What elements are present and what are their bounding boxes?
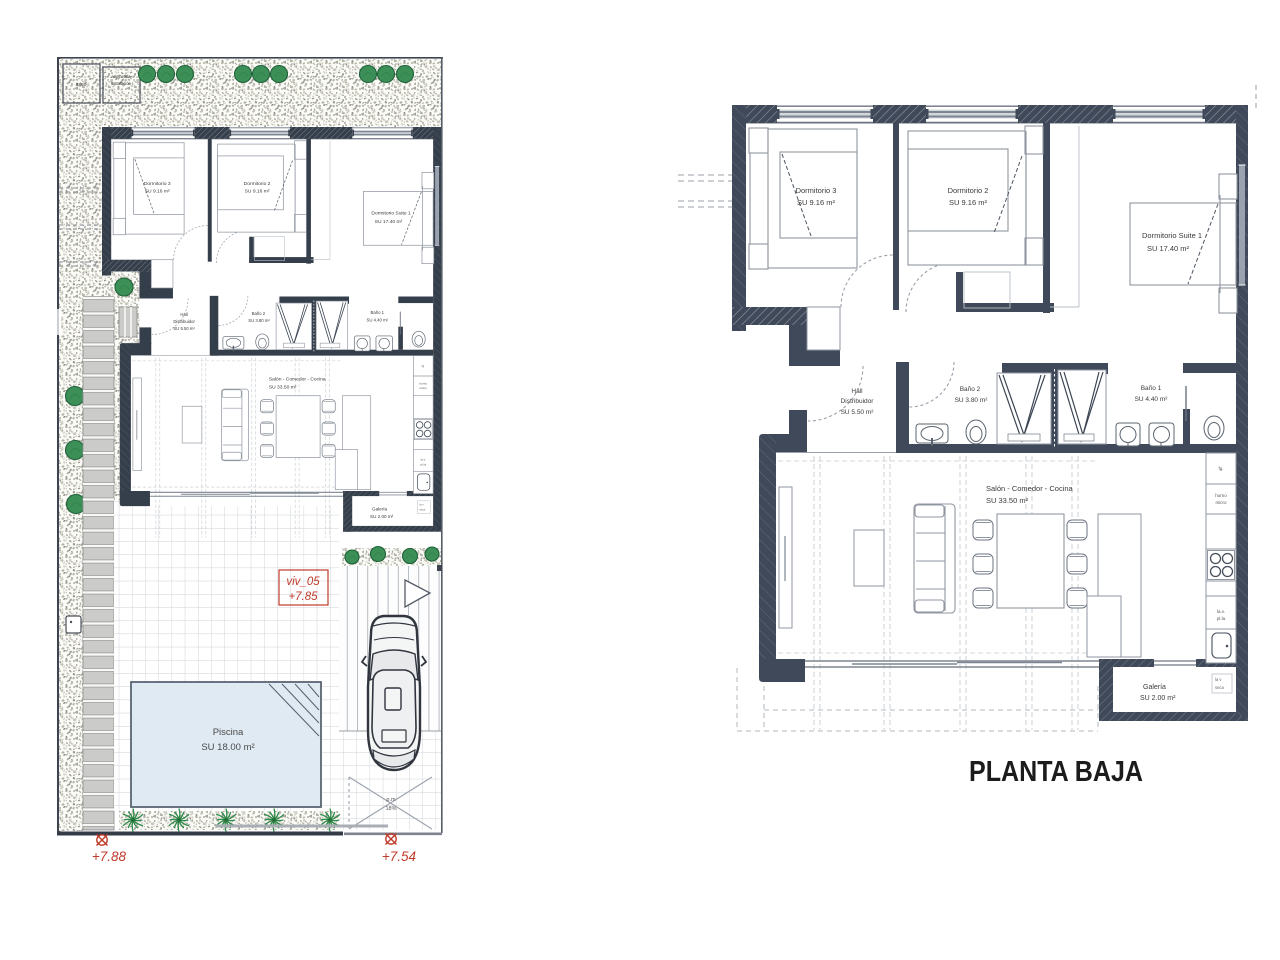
svg-text:SU 4.40 m²: SU 4.40 m²	[366, 317, 388, 322]
svg-text:Dormitorio 2: Dormitorio 2	[948, 186, 989, 195]
svg-text:SU 9.16 m²: SU 9.16 m²	[797, 198, 835, 207]
svg-text:pl.la: pl.la	[421, 462, 427, 466]
svg-text:Baño 2: Baño 2	[960, 386, 981, 393]
svg-text:horno: horno	[420, 382, 428, 386]
svg-text:SU 3.80 m²: SU 3.80 m²	[955, 397, 989, 404]
svg-text:pl.la: pl.la	[1217, 616, 1226, 621]
svg-text:SU 5.50 m²: SU 5.50 m²	[841, 409, 875, 416]
svg-text:SU 9.16 m²: SU 9.16 m²	[949, 198, 987, 207]
svg-text:SU 3.80 m²: SU 3.80 m²	[248, 318, 270, 323]
svg-text:+7.54: +7.54	[382, 849, 416, 864]
svg-text:Baño 1: Baño 1	[371, 310, 385, 315]
svg-text:Dormitorio 2: Dormitorio 2	[244, 181, 271, 187]
svg-text:SU 5.50 m²: SU 5.50 m²	[173, 326, 195, 331]
svg-text:Dormitorio Suite 1: Dormitorio Suite 1	[371, 210, 411, 216]
svg-text:p.m: p.m	[386, 797, 396, 803]
svg-text:Galería: Galería	[1143, 684, 1166, 691]
svg-text:Distribuidor: Distribuidor	[841, 398, 875, 405]
svg-text:SU 2.00 m²: SU 2.00 m²	[1140, 695, 1176, 702]
svg-text:SU 2.00 m²: SU 2.00 m²	[370, 514, 394, 519]
svg-text:SU 33.50 m²: SU 33.50 m²	[269, 384, 297, 390]
svg-text:18%: 18%	[385, 806, 396, 812]
svg-text:Baño 1: Baño 1	[1141, 385, 1162, 392]
svg-text:fg.: fg.	[1218, 466, 1223, 471]
svg-text:Galería: Galería	[372, 507, 387, 512]
svg-text:Distribuidor: Distribuidor	[173, 319, 195, 324]
svg-text:Dormitorio Suite 1: Dormitorio Suite 1	[1142, 231, 1202, 240]
svg-text:Salón - Comedor - Cocina: Salón - Comedor - Cocina	[269, 377, 326, 383]
svg-text:la.v.: la.v.	[421, 458, 426, 462]
svg-text:Piscina: Piscina	[213, 727, 244, 738]
svg-text:SU 17.40 m²: SU 17.40 m²	[1147, 244, 1190, 253]
svg-text:SU 17.40 m²: SU 17.40 m²	[375, 219, 403, 225]
svg-text:acometida: acometida	[111, 74, 131, 79]
svg-text:seca: seca	[419, 509, 425, 512]
svg-text:seca: seca	[1215, 685, 1225, 690]
svg-text:la v: la v	[419, 502, 424, 506]
svg-text:viv_05: viv_05	[286, 576, 320, 588]
svg-text:PLANTA BAJA: PLANTA BAJA	[969, 756, 1143, 788]
svg-text:fg.: fg.	[422, 364, 425, 368]
svg-text:instalación: instalación	[111, 81, 131, 86]
svg-text:Dormitorio 3: Dormitorio 3	[144, 181, 171, 187]
svg-text:Baño 2: Baño 2	[252, 311, 266, 316]
svg-text:aseo: aseo	[76, 82, 87, 88]
svg-text:micro: micro	[420, 386, 428, 390]
svg-text:la.v.: la.v.	[1217, 609, 1225, 614]
svg-text:+7.85: +7.85	[288, 591, 318, 603]
svg-text:+7.88: +7.88	[92, 849, 127, 864]
svg-text:Hall: Hall	[851, 388, 863, 395]
svg-text:horno: horno	[1215, 493, 1227, 498]
svg-text:Hall: Hall	[180, 312, 187, 317]
svg-text:SU 9.16 m²: SU 9.16 m²	[245, 189, 270, 195]
svg-text:SU 4.40 m²: SU 4.40 m²	[1135, 396, 1169, 403]
svg-text:la v: la v	[1215, 677, 1222, 682]
svg-text:SU 9.16 m²: SU 9.16 m²	[145, 189, 170, 195]
svg-text:micro: micro	[1216, 500, 1227, 505]
svg-text:SU 18.00 m²: SU 18.00 m²	[201, 742, 254, 753]
svg-text:SU 33.50 m²: SU 33.50 m²	[986, 496, 1029, 505]
svg-text:Dormitorio 3: Dormitorio 3	[796, 186, 837, 195]
svg-text:Salón - Comedor - Cocina: Salón - Comedor - Cocina	[986, 484, 1074, 493]
